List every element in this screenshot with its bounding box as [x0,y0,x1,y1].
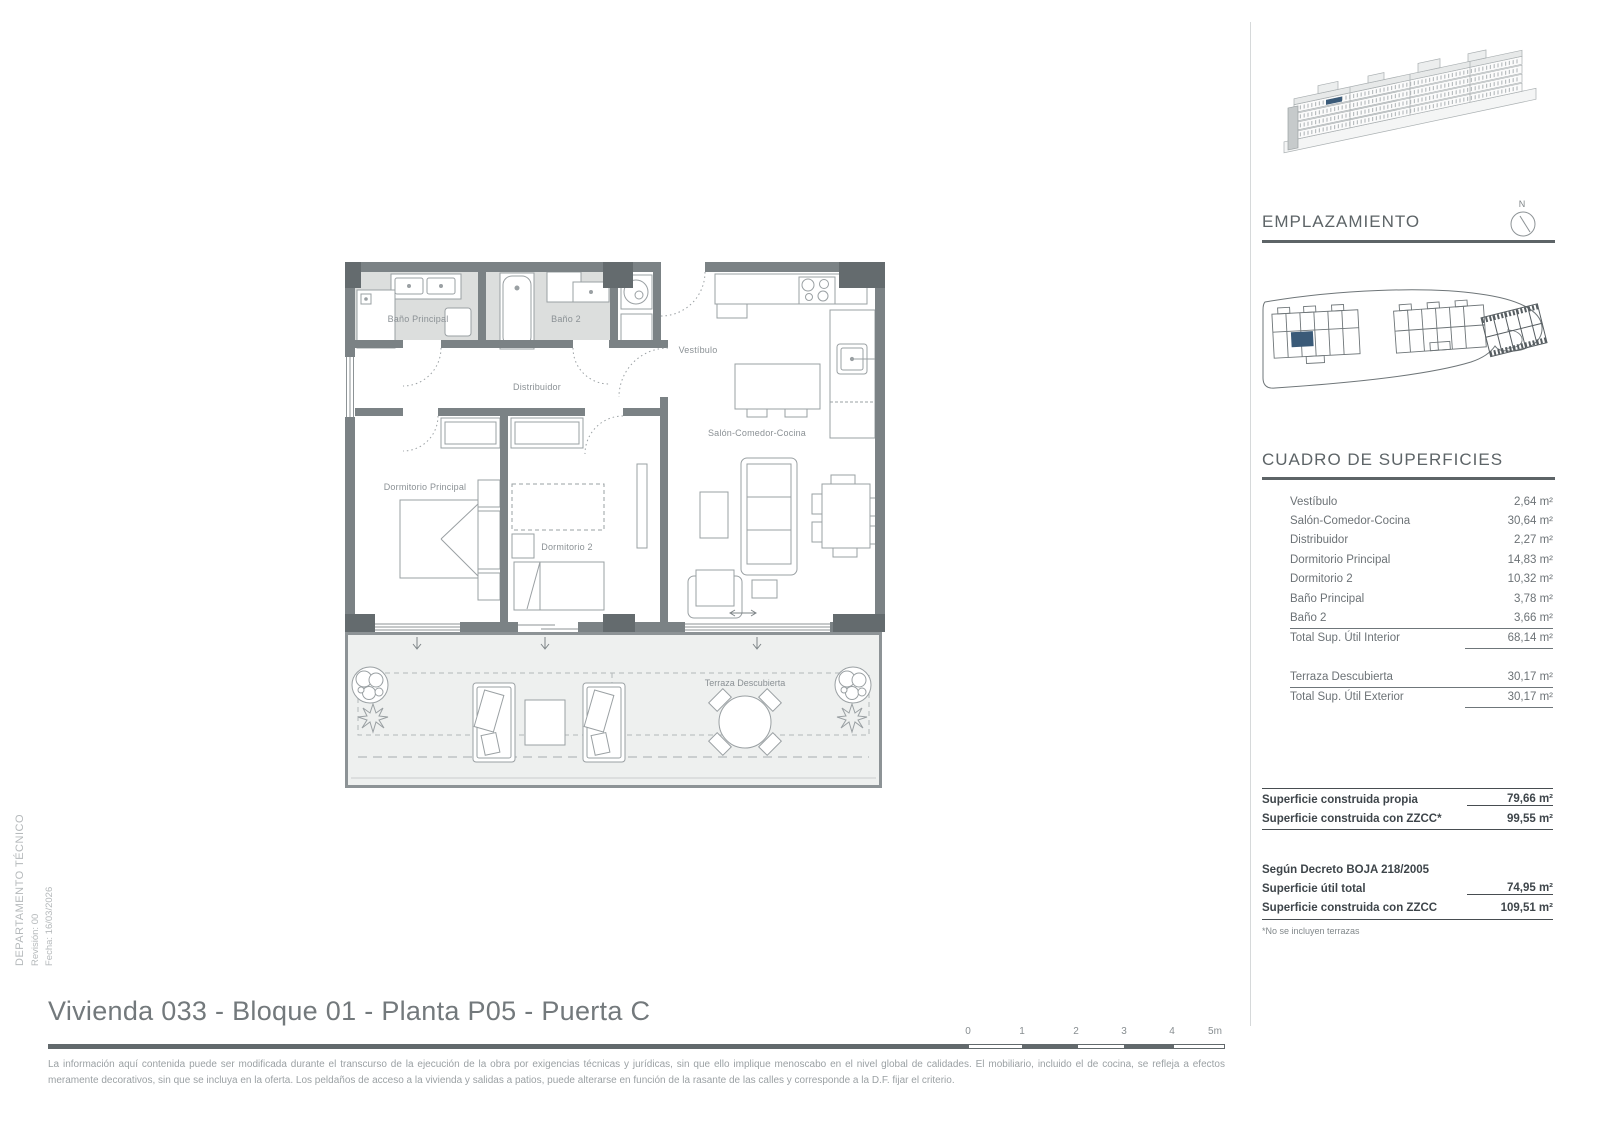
decree-label: Superficie útil total [1262,883,1366,895]
total-interior-row: Total Sup. Útil Interior 68,14 m² [1290,628,1553,648]
total-exterior-row: Total Sup. Útil Exterior 30,17 m² [1290,687,1553,707]
surface-value: 10,32 m² [1508,573,1553,585]
bed-outline-dashed [512,484,604,530]
decree-block: Según Decreto BOJA 218/2005 Superficie ú… [1262,860,1553,936]
plan-sheet: DEPARTAMENTO TÉCNICO Revisión: 00 Fecha:… [0,0,1600,1131]
scale-tick-label: 5m [1208,1026,1222,1037]
north-compass-icon: N [1498,194,1548,244]
document-meta: DEPARTAMENTO TÉCNICO Revisión: 00 Fecha:… [12,814,57,966]
surfaces-title: CUADRO DE SUPERFICIES [1262,450,1555,470]
decree-title: Según Decreto BOJA 218/2005 [1262,860,1553,879]
room-label: Baño 2 [551,314,581,324]
built-row: Superficie construida propia 79,66 m² [1262,790,1553,809]
terrace: Terraza Descubierta [347,634,881,787]
surface-value: 3,66 m² [1514,612,1553,624]
department-label: DEPARTAMENTO TÉCNICO [12,814,29,966]
scale-tick-label: 1 [1019,1026,1025,1037]
scale-tick-label: 0 [965,1026,971,1037]
room-label: Dormitorio Principal [384,482,467,492]
sidebar-divider [1250,22,1251,1026]
sliding-door [518,623,578,632]
surface-value: 3,78 m² [1514,593,1553,605]
sun-lounger [583,683,625,762]
built-row: Superficie construida con ZZCC* 99,55 m² [1262,809,1553,828]
scale-bar-segment [968,1044,1023,1049]
surface-label: Terraza Descubierta [1290,671,1393,683]
terrace-row: Terraza Descubierta 30,17 m² [1290,667,1553,686]
single-bed [514,562,604,610]
sofa [741,458,797,575]
cooktop-icon [799,277,835,304]
scale-bar [48,1044,1225,1049]
surface-label: Distribuidor [1290,534,1348,546]
decree-row: Superficie útil total 74,95 m² [1262,879,1553,898]
surface-label: Salón-Comedor-Cocina [1290,515,1410,527]
room-label: Terraza Descubierta [705,678,786,688]
scale-bar-segment [1077,1044,1125,1049]
surface-row: Vestíbulo 2,64 m² [1290,492,1553,511]
terrace-table [709,689,782,756]
unit-title: Vivienda 033 - Bloque 01 - Planta P05 - … [48,996,650,1027]
surface-label: Baño Principal [1290,593,1364,605]
value-underline [1465,707,1553,708]
decree-row: Superficie construida con ZZCC 109,51 m² [1262,898,1553,917]
surfaces-table: Vestíbulo 2,64 m² Salón-Comedor-Cocina 3… [1290,492,1553,708]
surfaces-rule [1262,477,1555,480]
total-label: Total Sup. Útil Interior [1290,632,1400,644]
surface-label: Dormitorio 2 [1290,573,1353,585]
total-value: 30,17 m² [1508,691,1553,703]
date-label: Fecha: 16/03/2026 [43,814,57,966]
revision-label: Revisión: 00 [29,814,43,966]
plant-icon [352,667,388,703]
room-label: Vestíbulo [679,345,718,355]
coffee-table [700,492,728,538]
built-rows: Superficie construida propia 79,66 m² Su… [1262,788,1553,830]
kitchen-island [735,364,820,409]
sun-lounger [473,683,515,762]
scale-bar-segment [1173,1044,1225,1049]
scale-tick-label: 2 [1073,1026,1079,1037]
room-label: Distribuidor [513,382,561,392]
surface-row: Dormitorio Principal 14,83 m² [1290,550,1553,569]
scale-tick-label: 3 [1121,1026,1127,1037]
decree-value: 74,95 m² [1467,882,1553,895]
site-plan [1245,272,1555,402]
surface-value: 30,17 m² [1508,671,1553,683]
built-label: Superficie construida propia [1262,794,1418,806]
surface-value: 2,27 m² [1514,534,1553,546]
surface-row: Salón-Comedor-Cocina 30,64 m² [1290,511,1553,530]
terrace-side-table [525,700,565,745]
surface-label: Baño 2 [1290,612,1326,624]
surface-row: Distribuidor 2,27 m² [1290,531,1553,550]
unit-highlight [1291,331,1314,347]
surface-row: Baño Principal 3,78 m² [1290,589,1553,608]
built-label: Superficie construida con ZZCC* [1262,813,1442,825]
building-axonometric-sketch [1282,26,1544,166]
legal-disclaimer: La información aquí contenida puede ser … [48,1057,1225,1088]
built-value: 99,55 m² [1467,813,1553,825]
plant-icon [835,667,871,703]
built-value: 79,66 m² [1467,793,1553,806]
terrace-footnote: *No se incluyen terrazas [1262,926,1553,936]
room-label: Dormitorio 2 [541,542,592,552]
scale-tick-label: 4 [1169,1026,1175,1037]
decree-label: Superficie construida con ZZCC [1262,902,1437,914]
surface-value: 30,64 m² [1508,515,1553,527]
decree-value: 109,51 m² [1467,902,1553,914]
svg-text:N: N [1519,199,1526,209]
side-table [752,580,777,598]
built-surface-summary: Superficie construida propia 79,66 m² Su… [1262,788,1553,936]
floor-plan: Terraza Descubierta [333,252,889,792]
total-label: Total Sup. Útil Exterior [1290,691,1404,703]
surface-value: 14,83 m² [1508,554,1553,566]
surface-label: Vestíbulo [1290,496,1337,508]
surface-value: 2,64 m² [1514,496,1553,508]
surface-label: Dormitorio Principal [1290,554,1390,566]
wardrobe [511,418,583,448]
room-label: Baño Principal [388,314,449,324]
room-label: Salón-Comedor-Cocina [708,428,806,438]
wardrobe [441,418,500,448]
total-value: 68,14 m² [1508,632,1553,644]
surface-row: Dormitorio 2 10,32 m² [1290,570,1553,589]
dining-set [812,475,876,557]
surface-row: Baño 2 3,66 m² [1290,608,1553,627]
